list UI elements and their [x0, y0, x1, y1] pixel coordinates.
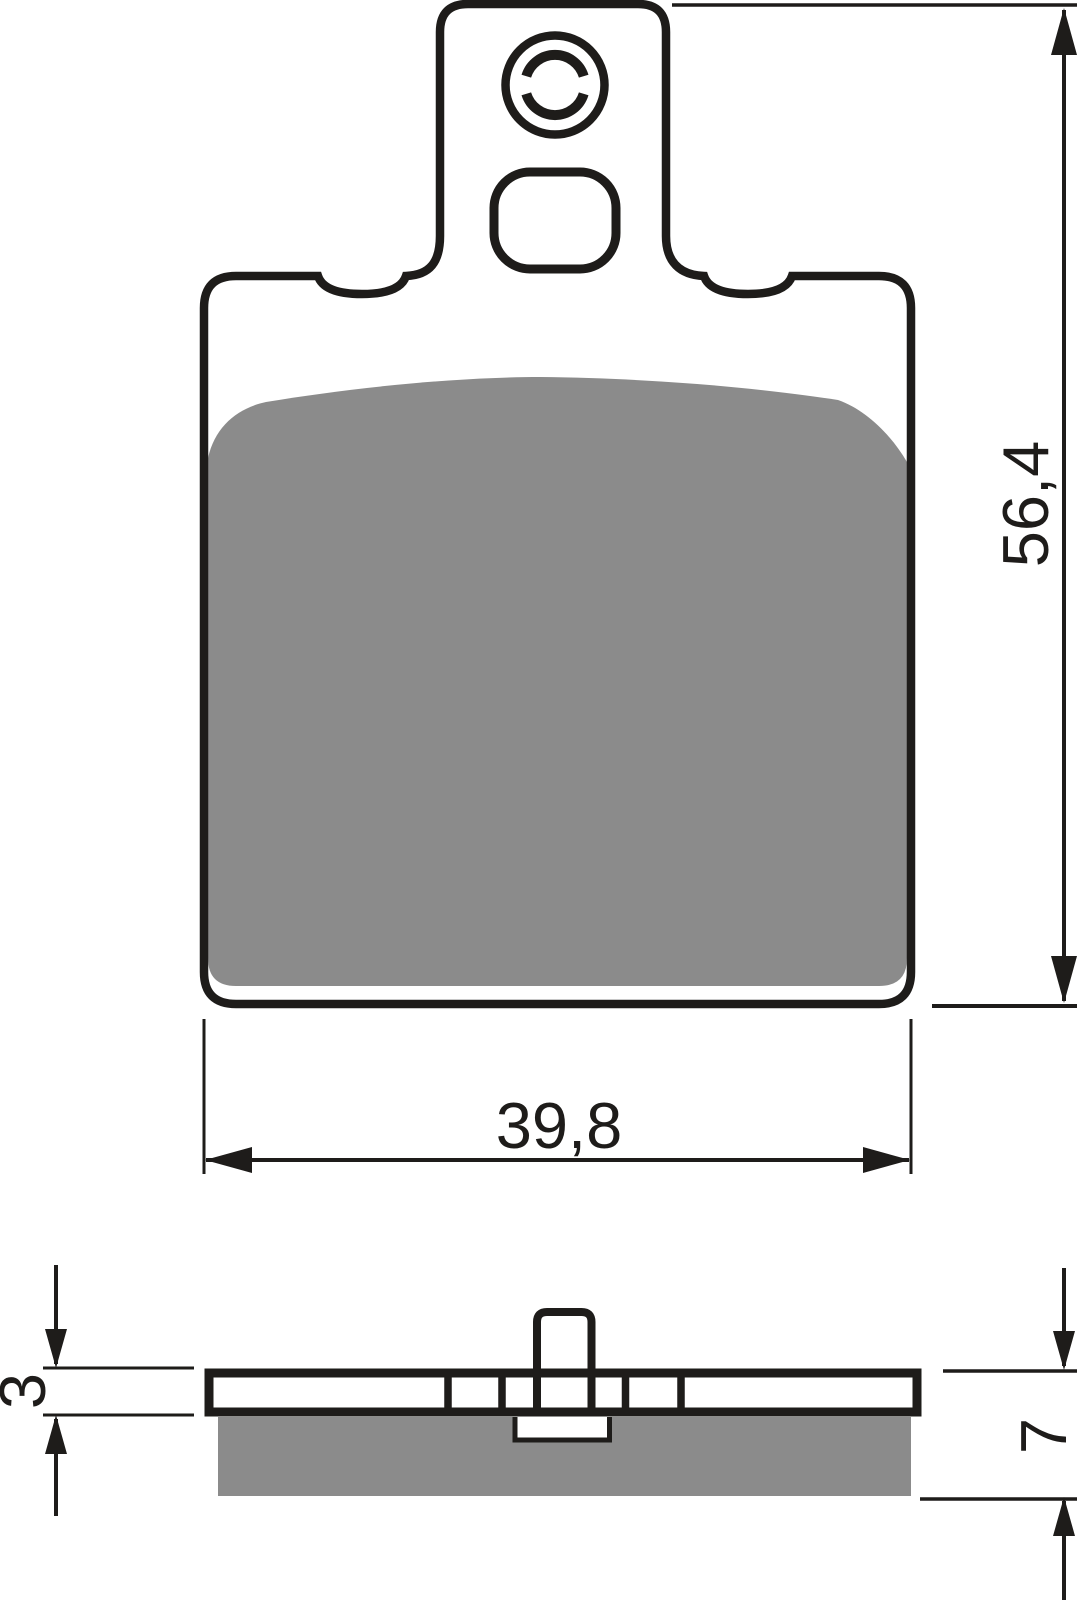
svg-text:39,8: 39,8 [496, 1089, 623, 1162]
svg-text:3: 3 [0, 1373, 59, 1409]
svg-text:7: 7 [1007, 1418, 1077, 1454]
svg-text:56,4: 56,4 [989, 441, 1062, 568]
